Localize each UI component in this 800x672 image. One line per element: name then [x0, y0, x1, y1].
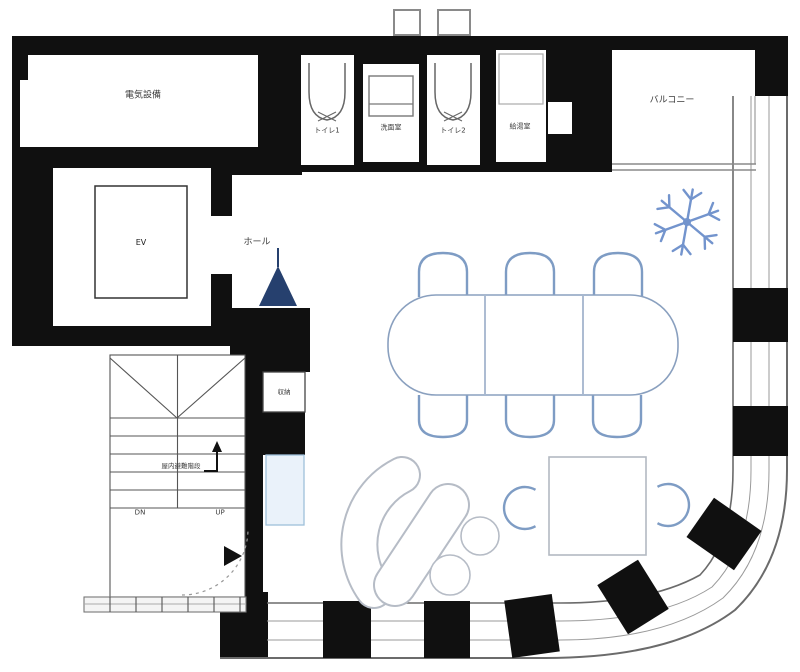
rooftop-shaft-boxes [394, 10, 470, 35]
toilet1-label: トイレ1 [314, 128, 339, 135]
hall-label: ホール [243, 239, 270, 248]
storage-label: 収納 [278, 389, 291, 396]
kitchenette-counter [499, 54, 543, 104]
washroom-label: 洗面室 [381, 125, 402, 132]
balcony-label: バルコニー [650, 97, 695, 106]
elevator-label: EV [136, 239, 147, 247]
sofa-group [359, 475, 499, 595]
stairs-dn-label: DN [135, 510, 146, 517]
toilet2-label: トイレ2 [440, 128, 465, 135]
stairs-up-label: UP [215, 510, 224, 517]
floorplan-page: 電気設備 トイレ1 洗面室 トイレ2 給湯室 バルコニー EV ホール 収納 屋… [0, 0, 800, 672]
balcony-window-line [612, 96, 756, 170]
entrance-strip [84, 597, 246, 612]
kitchenette-label: 給湯室 [510, 124, 531, 131]
snowflake-icon [653, 188, 721, 256]
washroom-sink [369, 76, 413, 116]
pendant-light-icon [259, 248, 297, 306]
conference-table [388, 295, 678, 395]
electrical-room-label: 電気設備 [125, 92, 161, 101]
stairs-label: 屋内避難階段 [162, 463, 201, 470]
stairwell [84, 355, 248, 612]
counter-unit [266, 455, 304, 525]
square-table-set [504, 457, 689, 555]
